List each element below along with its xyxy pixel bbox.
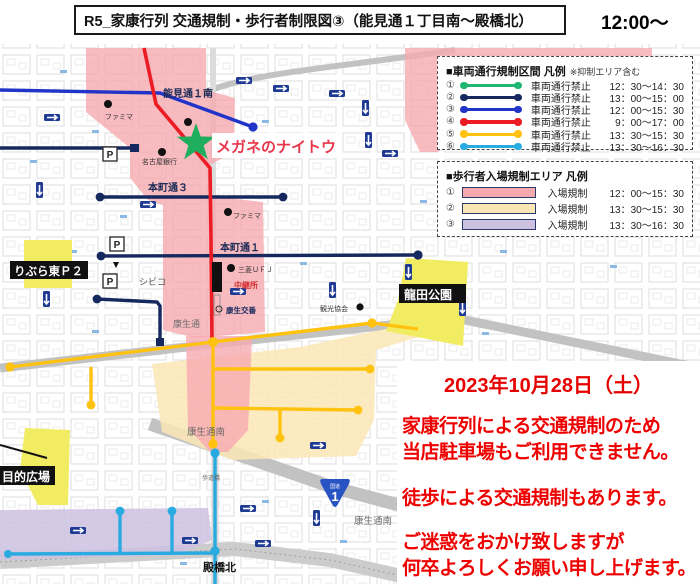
vehicle-legend-row: ⑥ 車両通行禁止 13：30～16：30 (446, 141, 684, 153)
label-kanko-kyokai: 観光協会 (320, 304, 348, 313)
parking-letter-3: P (107, 277, 114, 288)
notice-box: 2023年10月28日（土） 家康行列による交通規制のため 当店駐車場もご利用で… (397, 361, 700, 584)
notice-line: 家康行列による交通規制のため (402, 411, 660, 438)
line-swatch-blue (461, 108, 521, 111)
label-kosei-koban: 康生交番 (226, 305, 256, 315)
pedestrian-regulation-legend: ■歩行者入場規制エリア 凡例 ① 入場規制 12：00～15：30 ② 入場規制… (437, 161, 693, 237)
notice-line: ご迷惑をおかけ致しますが (402, 527, 624, 554)
label-famima-south: ファミマ (233, 212, 261, 220)
label-kosei-dori-minami: 康生通南 (187, 426, 225, 438)
route-shield-number: 1 (331, 489, 338, 504)
label-tonobashi-kita: 殿橋北 (202, 560, 236, 574)
time-badge: 12:00～ (601, 8, 669, 35)
vehicle-regulation-legend: ■車両通行規制区間 凡例※抑制エリア含む ① 車両通行禁止 12：30～14：3… (437, 56, 693, 150)
vehicle-legend-heading: ■車両通行規制区間 凡例※抑制エリア含む (446, 63, 684, 79)
area-swatch-yellow (462, 203, 536, 214)
area-swatch-purple (462, 219, 536, 230)
pedestrian-legend-row: ③ 入場規制 13：30～16：30 (446, 218, 684, 233)
label-relay-station: 中継所 (234, 280, 258, 290)
label-nomimichi-1-minami: 能見通１南 (163, 87, 213, 100)
label-mitsubishi-ufj: 三菱ＵＦＪ (238, 265, 273, 274)
parking-letter-1: P (107, 150, 114, 161)
notice-line: 徒歩による交通規制もあります。 (402, 483, 677, 510)
area-swatch-pink (462, 187, 536, 198)
line-swatch-cyan (461, 145, 521, 148)
line-swatch-red (461, 120, 521, 123)
pedestrian-legend-row: ① 入場規制 12：00～15：30 (446, 186, 684, 201)
route-line-blue-endpoint (248, 122, 257, 131)
label-famima-north: ファミマ (105, 113, 133, 121)
line-swatch-navy (461, 96, 521, 99)
label-kosei-dori-minami-2: 康生通南 (354, 515, 392, 527)
label-honmachi-1: 本町通１ (220, 241, 260, 254)
line-swatch-amber (461, 133, 521, 136)
flyer-page: P P P 国道 1 りぶら東Ｐ２ 龍田公園 目的広場 能見通１南 ファミマ 名… (0, 0, 700, 584)
parking-letter-2: P (114, 240, 121, 251)
label-kosei-dori: 康生通 (173, 318, 200, 329)
pedestrian-legend-row: ② 入場規制 13：30～15：30 (446, 202, 684, 217)
label-libra-east-parking: りぶら東Ｐ２ (14, 264, 83, 278)
vehicle-legend-note: ※抑制エリア含む (570, 67, 641, 77)
label-civico: シビコ (139, 277, 166, 287)
relay-station-building (212, 262, 222, 292)
label-megane-no-naito: メガネのナイトウ (216, 139, 336, 156)
line-swatch-green (461, 84, 521, 87)
label-nagoya-bank: 名古屋銀行 (142, 157, 177, 166)
label-plaza: 目的広場 (2, 469, 50, 484)
label-pedestrian-bridge: 歩道橋 (202, 474, 220, 482)
notice-date: 2023年10月28日（土） (397, 369, 700, 398)
label-honmachi-3: 本町通３ (148, 181, 188, 194)
notice-line: 何卒よろしくお願い申し上げます。 (402, 553, 696, 580)
pedestrian-legend-heading: ■歩行者入場規制エリア 凡例 (446, 168, 684, 184)
page-title: R5_家康行列 交通規制・歩行者制限図③（能見通１丁目南～殿橋北） (74, 5, 566, 35)
label-tatsuta-park: 龍田公園 (404, 287, 452, 302)
notice-line: 当店駐車場もご利用できません。 (402, 437, 679, 464)
shop-callout: メガネのナイトウ (212, 133, 342, 158)
